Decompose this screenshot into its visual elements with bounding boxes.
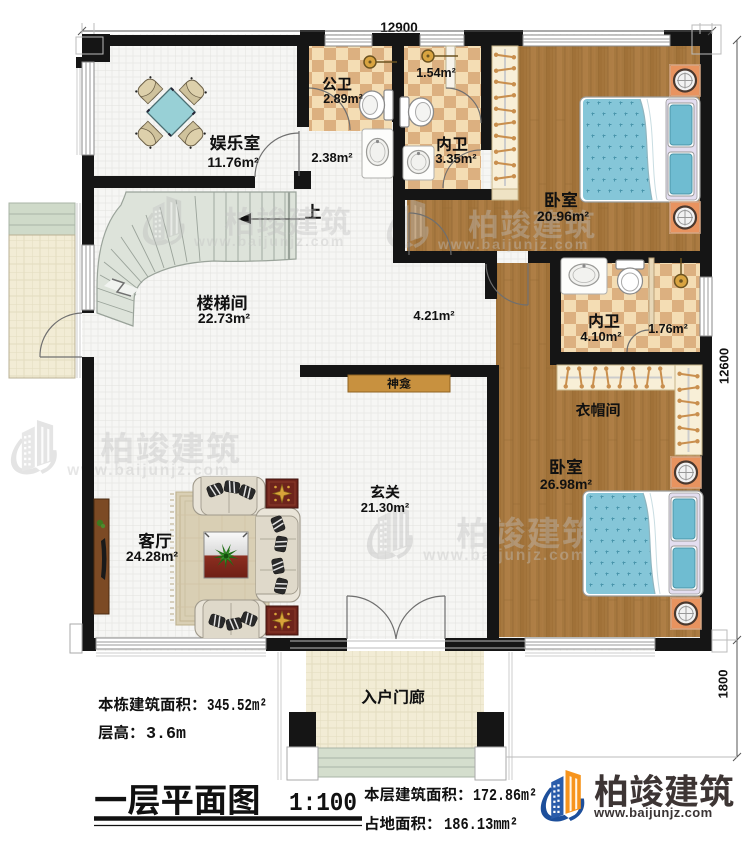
svg-text:2.89m²: 2.89m² — [323, 92, 363, 106]
svg-text:11.76m²: 11.76m² — [207, 154, 259, 170]
svg-text:www.baijunjz.com: www.baijunjz.com — [422, 547, 586, 564]
svg-text:1.54m²: 1.54m² — [416, 66, 456, 80]
svg-text:4.21m²: 4.21m² — [413, 308, 455, 323]
svg-text:www.baijunjz.com: www.baijunjz.com — [193, 233, 345, 249]
svg-text:3.6m: 3.6m — [146, 725, 186, 744]
svg-text:1800: 1800 — [716, 670, 731, 699]
svg-text:1:100: 1:100 — [289, 788, 357, 818]
svg-text:186.13mm²: 186.13mm² — [444, 816, 518, 835]
svg-text:12900: 12900 — [380, 20, 418, 35]
svg-text:2.38m²: 2.38m² — [311, 150, 353, 165]
svg-text:22.73m²: 22.73m² — [198, 310, 250, 326]
svg-text:24.28m²: 24.28m² — [126, 548, 178, 564]
svg-text:172.86m²: 172.86m² — [473, 787, 537, 806]
svg-text:20.96m²: 20.96m² — [537, 208, 589, 224]
svg-text:3.35m²: 3.35m² — [435, 151, 477, 166]
svg-text:345.52m²: 345.52m² — [207, 697, 267, 716]
svg-text:www.baijunjz.com: www.baijunjz.com — [593, 805, 713, 820]
svg-text:26.98m²: 26.98m² — [540, 476, 592, 492]
svg-text:4.10m²: 4.10m² — [580, 329, 622, 344]
svg-text:www.baijunjz.com: www.baijunjz.com — [437, 236, 589, 252]
svg-text:21.30m²: 21.30m² — [361, 500, 410, 515]
svg-text:12600: 12600 — [717, 348, 732, 384]
svg-text:1.76m²: 1.76m² — [648, 322, 688, 336]
